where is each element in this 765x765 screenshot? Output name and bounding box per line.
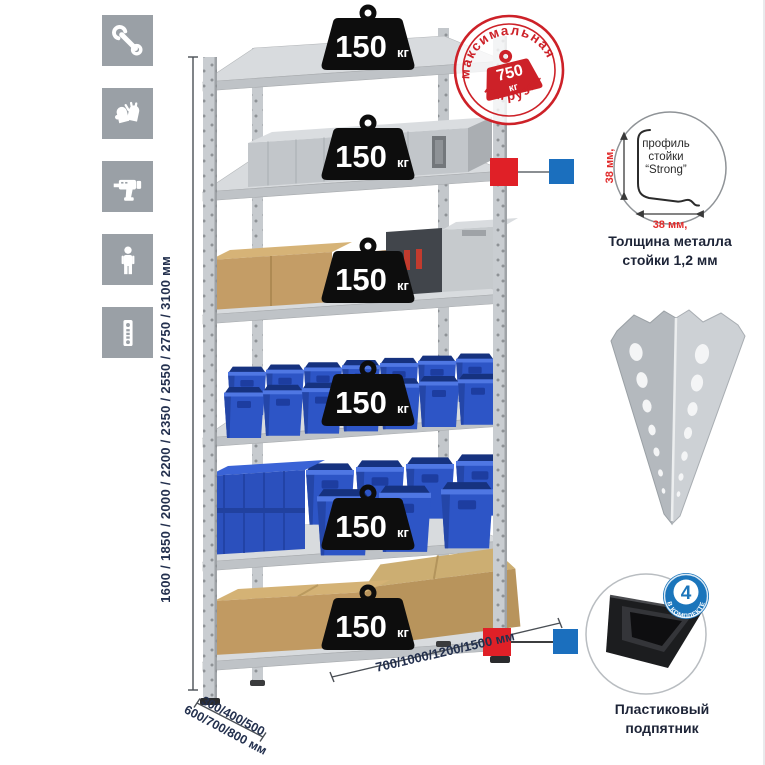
svg-text:кг: кг [397,401,410,416]
post-profile-detail: 38 мм, 38 мм, профиль стойки “Strong” [604,112,726,231]
svg-text:кг: кг [397,625,410,640]
svg-text:38 мм,: 38 мм, [653,219,688,231]
product-infographic: 150 кг 150 кг 150 кг 150 кг [0,0,765,765]
svg-text:4: 4 [681,583,692,604]
svg-text:кг: кг [397,525,410,540]
max-load-stamp: 750 кг максимальная нагрузка [444,5,575,136]
svg-text:кг: кг [397,155,410,170]
svg-text:“Strong”: “Strong” [645,164,687,176]
svg-text:стойки: стойки [648,151,683,163]
height-dimension-label: 1600 / 1850 / 2000 / 2200 / 2350 / 2550 … [152,57,178,691]
svg-text:профиль: профиль [642,138,690,150]
plastic-foot-detail: 4 В КОМПЛЕКТЕ [586,573,709,694]
svg-text:150: 150 [335,609,387,644]
svg-text:кг: кг [397,45,410,60]
plastic-foot-caption: Пластиковый подпятник [592,700,732,738]
svg-text:кг: кг [397,278,410,293]
svg-text:150: 150 [335,29,387,64]
shelving-rack-illustration: 150 кг 150 кг 150 кг 150 кг [0,0,765,765]
svg-text:150: 150 [335,262,387,297]
svg-text:150: 150 [335,385,387,420]
corner-post-illustration [611,310,745,524]
shelf-load-badge: 150 кг [322,7,415,70]
metal-thickness-caption: Толщина металла стойки 1,2 мм [586,232,754,270]
svg-text:150: 150 [335,509,387,544]
svg-text:38 мм,: 38 мм, [604,149,616,184]
svg-text:150: 150 [335,139,387,174]
